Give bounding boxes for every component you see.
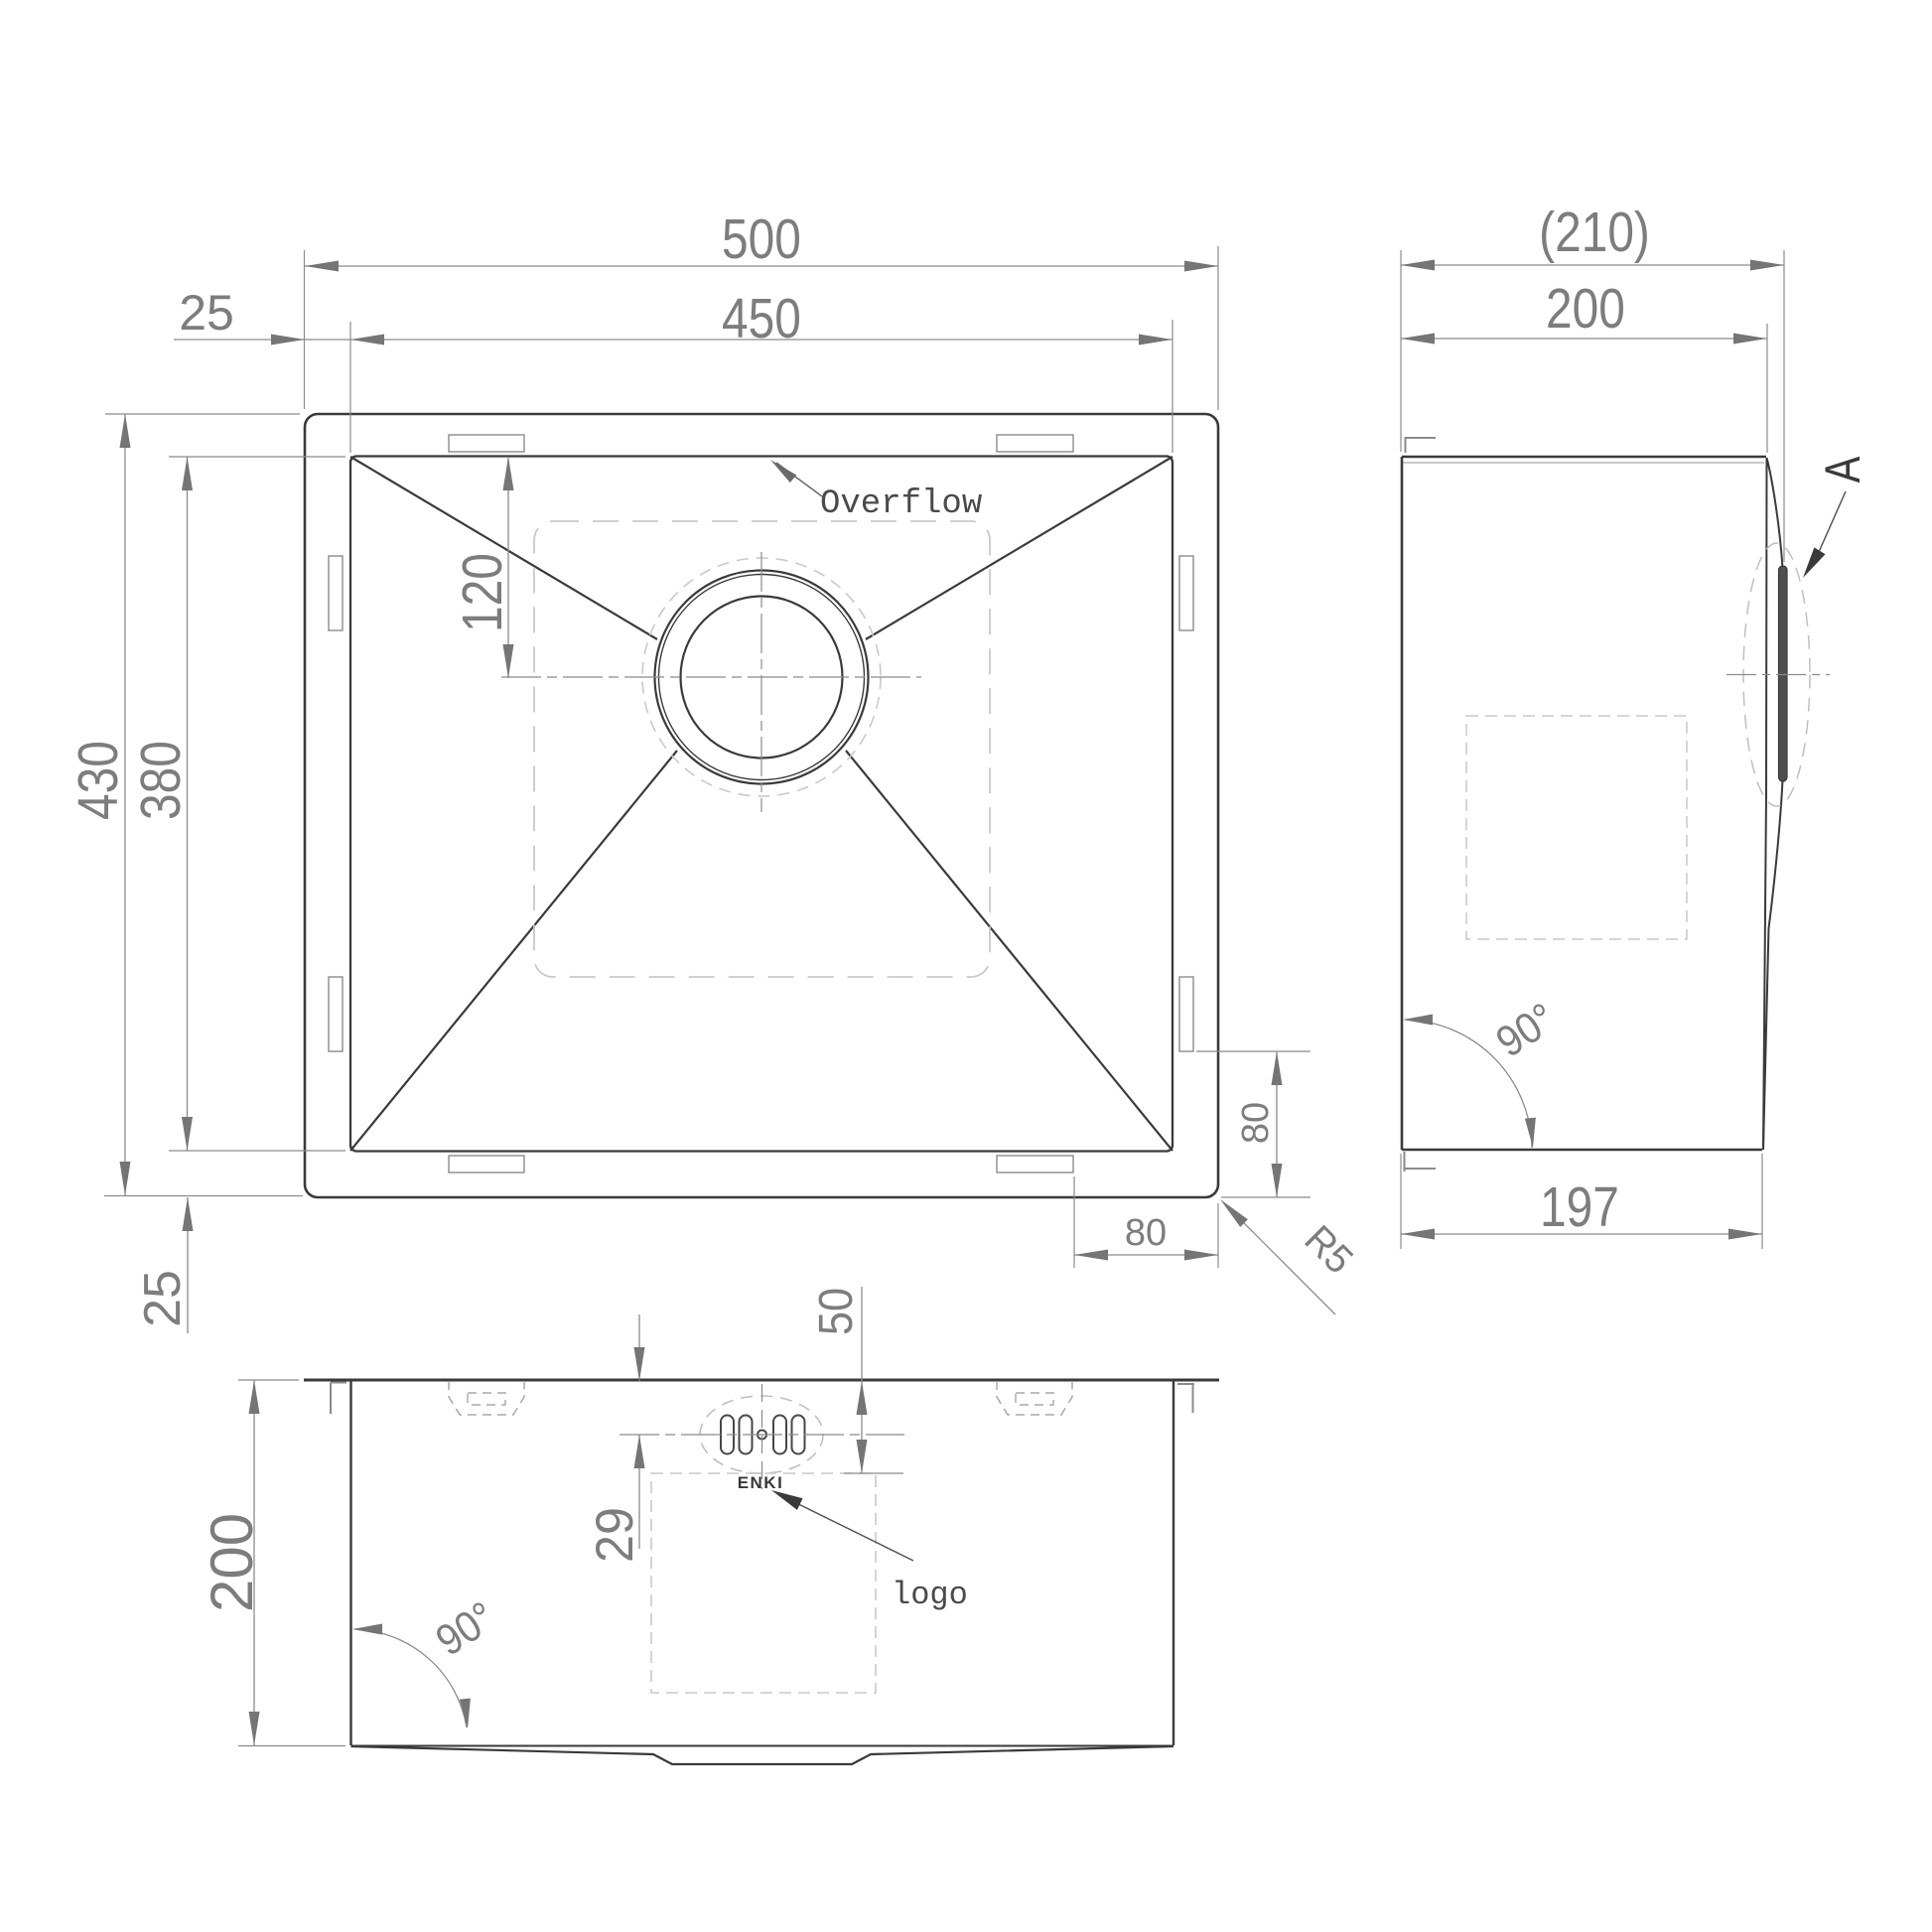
svg-text:430: 430 [67, 741, 130, 820]
svg-text:500: 500 [722, 207, 801, 271]
svg-text:25: 25 [179, 285, 234, 341]
svg-text:120: 120 [451, 553, 514, 632]
svg-text:450: 450 [722, 287, 801, 350]
svg-text:A: A [1815, 456, 1870, 483]
svg-text:logo: logo [892, 1577, 968, 1613]
svg-text:29: 29 [585, 1507, 643, 1563]
svg-text:25: 25 [134, 1270, 192, 1327]
svg-text:197: 197 [1540, 1175, 1619, 1239]
svg-text:380: 380 [129, 741, 193, 820]
svg-text:(210): (210) [1539, 201, 1650, 264]
svg-text:200: 200 [1546, 277, 1625, 341]
svg-text:200: 200 [199, 1513, 265, 1612]
svg-text:50: 50 [809, 1288, 863, 1335]
svg-text:ENKI: ENKI [738, 1473, 784, 1492]
svg-text:80: 80 [1125, 1212, 1167, 1254]
svg-text:Overflow: Overflow [820, 485, 983, 523]
svg-text:80: 80 [1235, 1102, 1277, 1144]
